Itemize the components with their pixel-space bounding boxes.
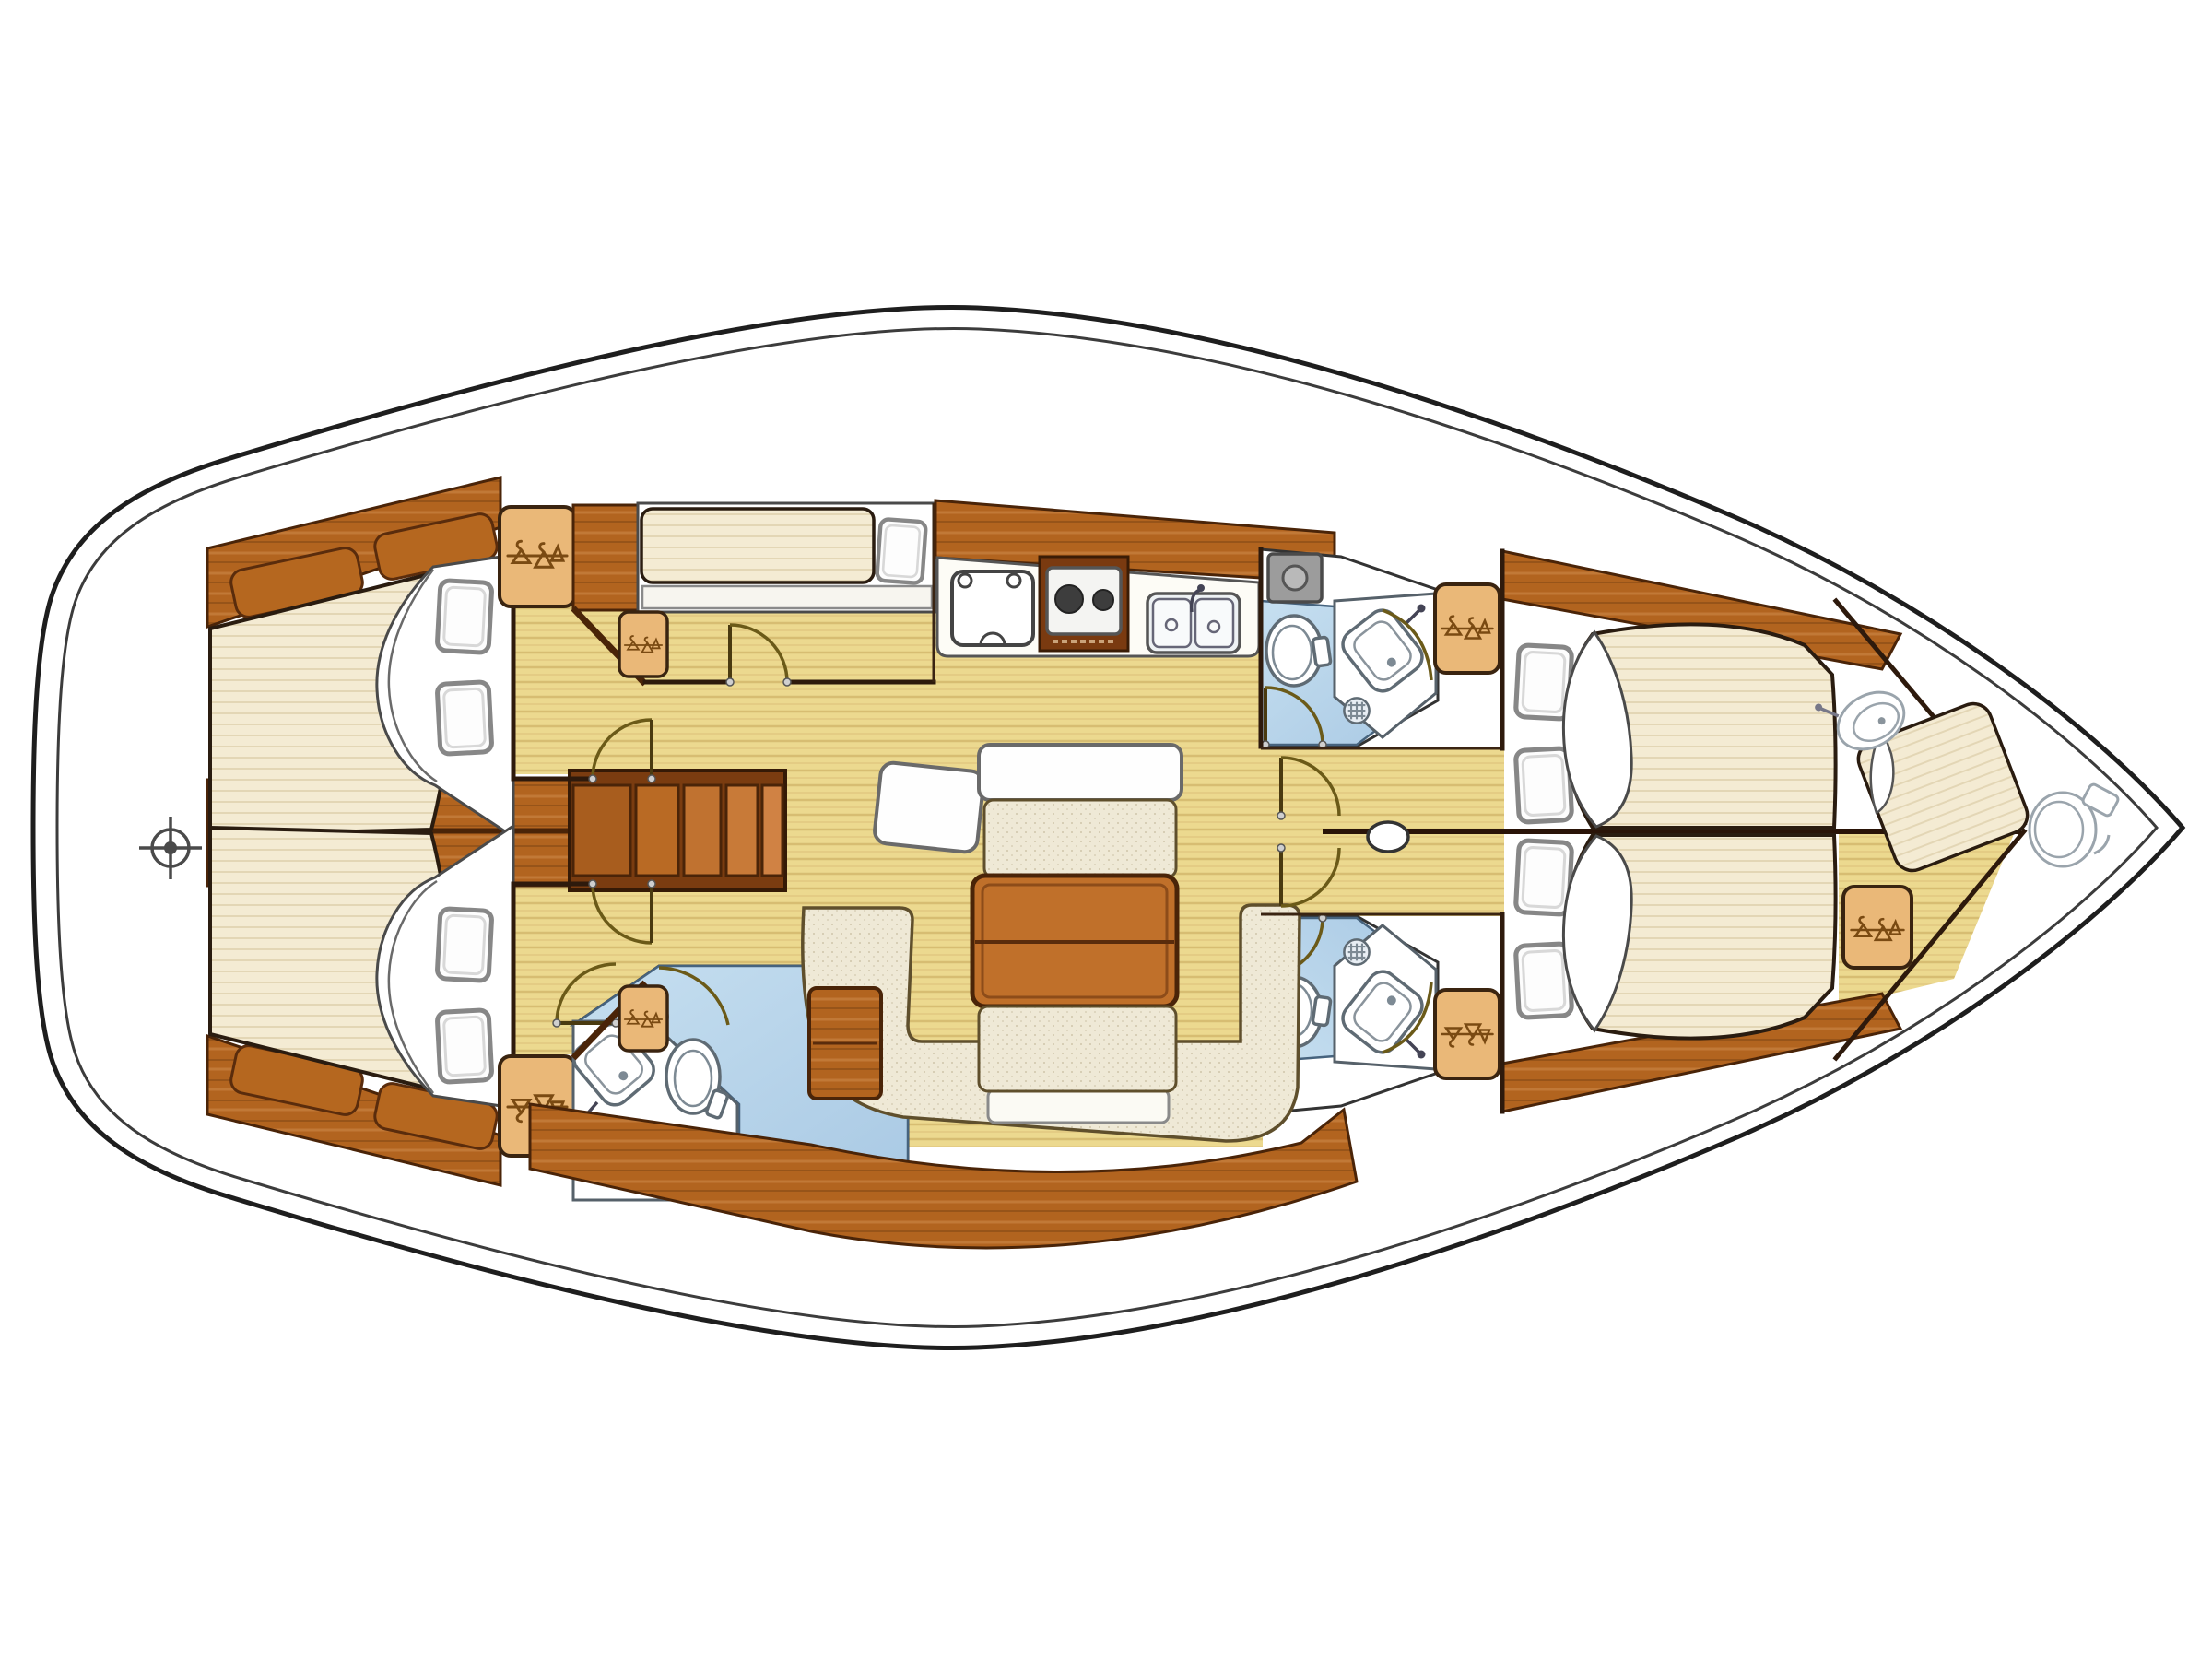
floorplan-canvas: Sailing yacht interior layout — top-down… (0, 0, 2212, 1659)
shower-drain-icon (1344, 698, 1369, 723)
yacht-floorplan-page: Sailing yacht interior layout — top-down… (0, 0, 2212, 1659)
salon-table (972, 876, 1177, 1006)
chair-leaf (874, 761, 985, 853)
fridge (952, 571, 1033, 645)
galley-sink (1147, 584, 1240, 653)
step-tread (636, 785, 678, 876)
hanging-locker (1843, 887, 1912, 968)
pillow (877, 519, 926, 583)
pillow (1515, 748, 1571, 823)
step-tread (762, 785, 782, 876)
step-tread (726, 785, 758, 876)
bench-cushion (979, 1006, 1176, 1091)
single-berth-mattress (641, 509, 874, 582)
hanging-locker-small (619, 612, 667, 677)
hanging-locker (1435, 584, 1500, 673)
partition-cabinet (573, 505, 638, 610)
bench-cushion (984, 800, 1176, 877)
side-cabinet (809, 988, 881, 1099)
berth-shelf (642, 586, 932, 608)
pillow (437, 581, 492, 653)
stove (1040, 557, 1128, 651)
settee-front-edge (988, 1089, 1169, 1123)
step-tread (684, 785, 721, 876)
hanging-locker-small (619, 986, 667, 1051)
pillow (437, 682, 492, 755)
table-leaf (979, 745, 1182, 800)
shower-tray (1268, 554, 1322, 602)
hanging-locker (500, 507, 575, 606)
companionway-steps (570, 771, 785, 890)
mast-icon (1368, 822, 1408, 852)
